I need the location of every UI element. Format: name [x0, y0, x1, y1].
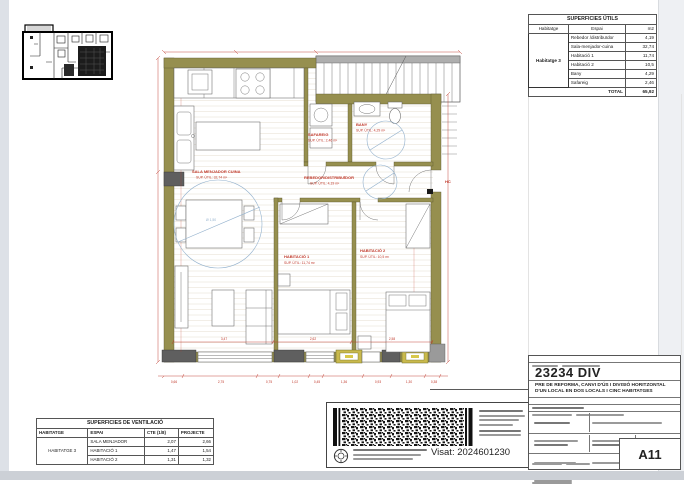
table-row: Bany: [568, 70, 625, 79]
svg-text:3,47: 3,47: [221, 337, 227, 341]
key-plan: [20, 22, 118, 88]
svg-text:SUP. ÚTIL: 4,29 m²: SUP. ÚTIL: 4,29 m²: [356, 128, 386, 133]
title-block: 23234 DIV PRE DE REFORMA, CANVI D'ÚS I D…: [528, 355, 681, 470]
total-label: TOTAL: [529, 88, 626, 97]
svg-text:2,58: 2,58: [389, 337, 395, 341]
svg-text:2,62: 2,62: [310, 337, 316, 341]
table-row: SALA MENJADOR: [88, 438, 145, 447]
kitchen-island: [196, 122, 260, 150]
bed-1: [278, 290, 350, 334]
sink-icon: [174, 106, 195, 170]
ventilation-table-title: SUPERFICIES DE VENTILACIÓ: [37, 419, 214, 429]
habitatge-cell: HABITATGE 3: [37, 438, 88, 465]
titleblock-field-placeholder: [529, 398, 680, 405]
turning-circle-label: Ø 1,50: [206, 218, 216, 222]
label-rebedor: REBEDOR/DISTRIBUÏDOR: [304, 175, 354, 180]
titleblock-field-placeholder: [529, 356, 680, 363]
project-number: 23234 DIV: [532, 364, 677, 380]
table-row: Habitació 2: [568, 61, 625, 70]
svg-text:SUP. ÚTIL: 10,5 m²: SUP. ÚTIL: 10,5 m²: [360, 254, 390, 259]
sheet-number: A11: [619, 438, 680, 469]
cooktop-icon: [236, 69, 270, 98]
visat-number: Visat: 2024601230: [431, 447, 510, 458]
svg-text:2,75: 2,75: [218, 380, 224, 384]
total-value: 65,92: [625, 88, 656, 97]
table-row: Safareig: [568, 79, 625, 88]
project-description: PRE DE REFORMA, CANVI D'ÚS I DIVISIÓ HOR…: [532, 382, 677, 397]
scan-edge-left: [0, 0, 9, 480]
sofa: [246, 290, 272, 344]
table-row: Sala-menjador-cuina: [568, 43, 625, 52]
stamp-smallprint-left: [353, 449, 431, 463]
label-bany: BANY: [356, 122, 368, 127]
table-row: Rebedor /distribuïdor: [568, 34, 625, 43]
svg-text:1,30: 1,30: [406, 380, 412, 384]
scanned-plan-sheet: { "sheet": { "project_number": "23234 DI…: [0, 0, 684, 480]
floor-plan: Ø 1,50: [148, 46, 488, 396]
label-sala: SALA MENJADOR CUINA: [192, 169, 241, 174]
titleblock-field-placeholder: [529, 412, 680, 434]
label-safareig: SAFAREIG: [308, 132, 328, 137]
svg-text:0,75: 0,75: [266, 380, 272, 384]
svg-text:0,38: 0,38: [431, 380, 437, 384]
label-habitacio-1: HABITACIÓ 1: [284, 254, 310, 259]
washbasin-icon: [354, 102, 380, 116]
svg-text:0,93: 0,93: [375, 380, 381, 384]
svg-text:1,02: 1,02: [292, 380, 298, 384]
neighbor-hatch: [442, 106, 457, 154]
svg-text:SUP. ÚTIL: 11,74 m²: SUP. ÚTIL: 11,74 m²: [284, 260, 316, 265]
stamp-smallprint-right: [479, 410, 527, 439]
svg-text:SUP. ÚTIL: 32,74 m²: SUP. ÚTIL: 32,74 m²: [196, 175, 228, 180]
visat-stamp: Visat: 2024601230: [326, 402, 532, 468]
barcode: [333, 408, 473, 446]
surfaces-table-title: SUPERFICIES ÚTILS: [529, 15, 657, 25]
sheet-frame: [528, 94, 682, 355]
college-seal-icon: [333, 448, 349, 464]
table-row: Habitació 1: [568, 52, 625, 61]
titleblock-field-placeholder: [529, 405, 680, 412]
svg-text:1,36: 1,36: [341, 380, 347, 384]
svg-text:SUP. ÚTIL: 4,19 m²: SUP. ÚTIL: 4,19 m²: [310, 181, 340, 186]
table-row: HABITACIÓ 2: [88, 456, 145, 465]
table-row: HABITACIÓ 1: [88, 447, 145, 456]
svg-text:0,45: 0,45: [314, 380, 320, 384]
label-habitacio-2: HABITACIÓ 2: [360, 248, 386, 253]
svg-text:SUP. ÚTIL: 2,46 m²: SUP. ÚTIL: 2,46 m²: [308, 138, 338, 143]
ventilation-table: SUPERFICIES DE VENTILACIÓ HABITATGE ESPA…: [36, 418, 214, 465]
entry-door-hinge: [427, 189, 433, 194]
svg-text:0,66: 0,66: [171, 380, 177, 384]
habitatge-cell: Habitatge 3: [529, 34, 569, 88]
surfaces-table: SUPERFICIES ÚTILS Habitatge Espai m2 Hab…: [528, 14, 657, 97]
bed-2: [386, 292, 430, 352]
